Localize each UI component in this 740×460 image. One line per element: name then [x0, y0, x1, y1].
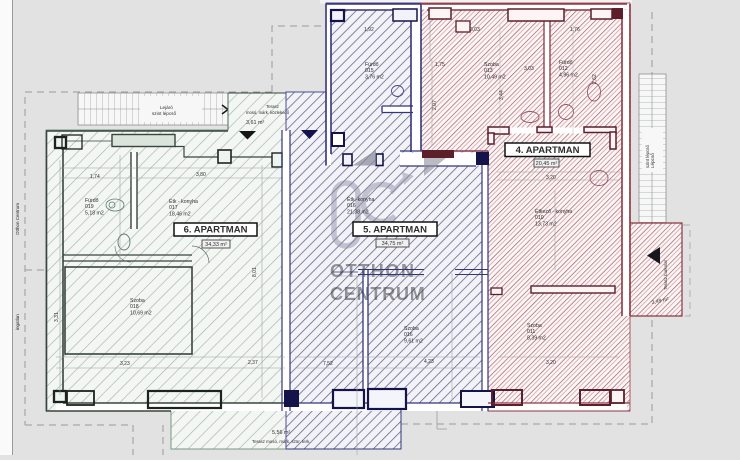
svg-text:Terasz: Terasz — [266, 104, 279, 109]
svg-text:4,23: 4,23 — [424, 359, 434, 365]
svg-text:3,03: 3,03 — [470, 27, 480, 33]
svg-text:Lépcső: Lépcső — [650, 153, 655, 168]
svg-text:3,20: 3,20 — [546, 175, 556, 181]
svg-text:szint lépcső: szint lépcső — [152, 111, 176, 116]
svg-text:3,03: 3,03 — [524, 66, 534, 72]
svg-text:3,61 m²: 3,61 m² — [246, 120, 264, 126]
svg-text:5,56 m²: 5,56 m² — [272, 430, 290, 436]
svg-text:5,18 m2: 5,18 m2 — [85, 210, 104, 216]
svg-text:szint lépcső: szint lépcső — [645, 145, 650, 168]
svg-text:7,52: 7,52 — [323, 361, 333, 367]
svg-text:Szoba: Szoba — [130, 298, 145, 304]
svg-text:3,23: 3,23 — [120, 361, 130, 367]
svg-text:3,44: 3,44 — [499, 90, 505, 100]
svg-text:016: 016 — [404, 332, 413, 338]
svg-text:20,45 m²: 20,45 m² — [536, 161, 558, 167]
svg-text:10,49 m2: 10,49 m2 — [484, 74, 506, 80]
svg-text:Terasz burkolat: Terasz burkolat — [663, 259, 668, 290]
svg-text:011: 011 — [527, 329, 535, 335]
svg-text:016: 016 — [347, 203, 356, 209]
svg-text:ingatlan: ingatlan — [15, 314, 20, 330]
svg-text:Terasz mosó, márk. szür. terk.: Terasz mosó, márk. szür. terk. — [252, 439, 311, 444]
svg-text:OTTHON: OTTHON — [330, 261, 416, 281]
svg-text:015: 015 — [365, 68, 374, 74]
svg-text:4,96 m2: 4,96 m2 — [559, 72, 578, 78]
svg-text:Szoba: Szoba — [404, 326, 419, 332]
svg-text:8,39 m2: 8,39 m2 — [527, 335, 546, 341]
svg-text:5. APARTMAN: 5. APARTMAN — [363, 225, 427, 236]
svg-text:3,31: 3,31 — [54, 312, 60, 322]
svg-text:019: 019 — [85, 204, 94, 210]
svg-text:21,38 m2: 21,38 m2 — [347, 209, 369, 215]
svg-text:1,92: 1,92 — [364, 27, 374, 33]
svg-text:013: 013 — [484, 68, 493, 74]
svg-text:Étk.-konyha: Étk.-konyha — [347, 196, 375, 203]
svg-text:3,76 m2: 3,76 m2 — [365, 74, 384, 80]
svg-text:2,37: 2,37 — [248, 360, 258, 366]
svg-text:9,61 m2: 9,61 m2 — [404, 338, 423, 344]
svg-text:017: 017 — [169, 205, 178, 211]
svg-text:34,33 m²: 34,33 m² — [205, 242, 227, 248]
svg-text:Fürdő: Fürdő — [559, 60, 573, 66]
svg-text:18,46 m2: 18,46 m2 — [169, 211, 191, 217]
svg-text:4. APARTMAN: 4. APARTMAN — [516, 145, 580, 156]
svg-text:Lejáró: Lejáró — [160, 105, 173, 110]
svg-text:34,75 m²: 34,75 m² — [382, 241, 404, 247]
svg-text:Otthon Centrum: Otthon Centrum — [15, 203, 20, 235]
svg-text:8,01: 8,01 — [252, 267, 258, 277]
svg-text:3,20: 3,20 — [546, 360, 556, 366]
svg-text:Fürdő: Fürdő — [85, 198, 99, 204]
svg-text:Étk - konyha: Étk - konyha — [169, 198, 198, 205]
svg-text:1,76: 1,76 — [570, 27, 580, 33]
svg-text:3,80: 3,80 — [196, 172, 206, 178]
svg-text:2,62: 2,62 — [592, 74, 598, 84]
svg-text:10,69 m2: 10,69 m2 — [130, 310, 152, 316]
svg-text:1,74: 1,74 — [90, 174, 100, 180]
svg-text:mosó, márk. közlekedő: mosó, márk. közlekedő — [246, 110, 290, 115]
svg-text:2,07: 2,07 — [432, 100, 438, 110]
svg-text:13,73 m2: 13,73 m2 — [535, 221, 557, 227]
svg-text:Étkező - konyha: Étkező - konyha — [535, 208, 572, 215]
svg-text:018: 018 — [130, 304, 139, 310]
svg-text:010: 010 — [535, 215, 544, 221]
svg-text:012: 012 — [559, 66, 568, 72]
svg-text:CENTRUM: CENTRUM — [330, 284, 426, 304]
svg-text:1,75: 1,75 — [435, 62, 445, 68]
svg-text:Szoba: Szoba — [484, 62, 499, 68]
svg-text:6. APARTMAN: 6. APARTMAN — [184, 225, 248, 236]
svg-text:Szoba: Szoba — [527, 323, 542, 329]
svg-text:Fürdő: Fürdő — [365, 62, 379, 68]
